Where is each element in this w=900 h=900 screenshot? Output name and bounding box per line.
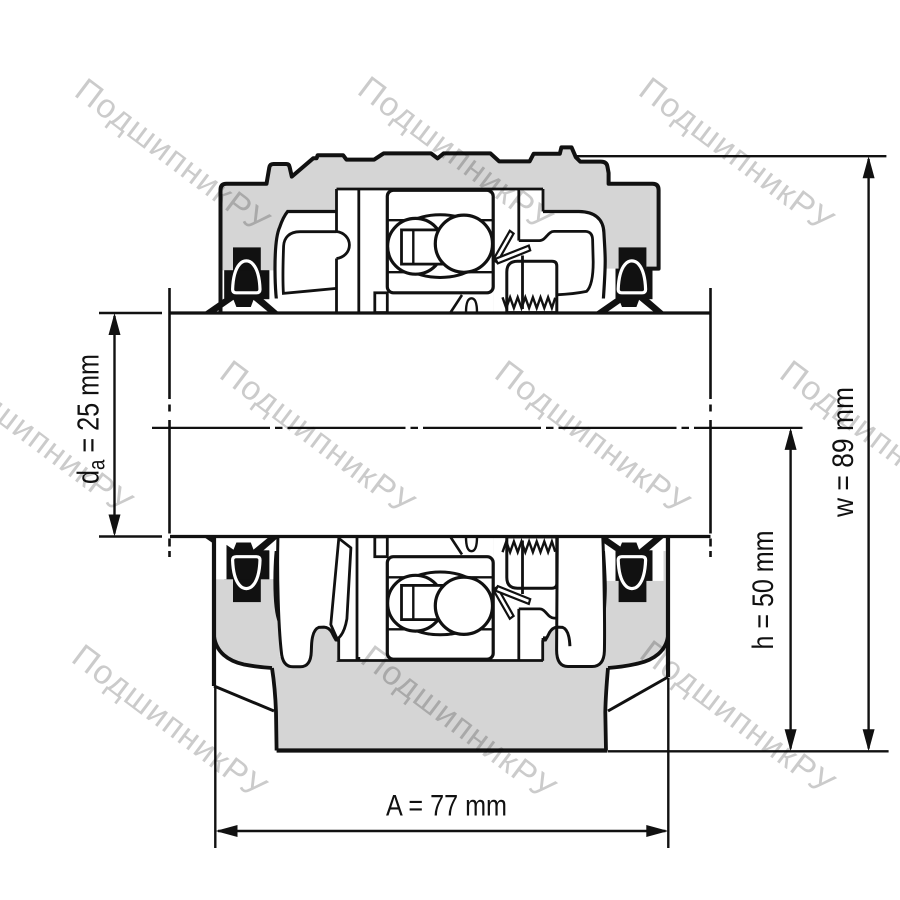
svg-text:h = 50 mm: h = 50 mm <box>747 531 780 650</box>
svg-text:A = 77 mm: A = 77 mm <box>386 790 507 823</box>
